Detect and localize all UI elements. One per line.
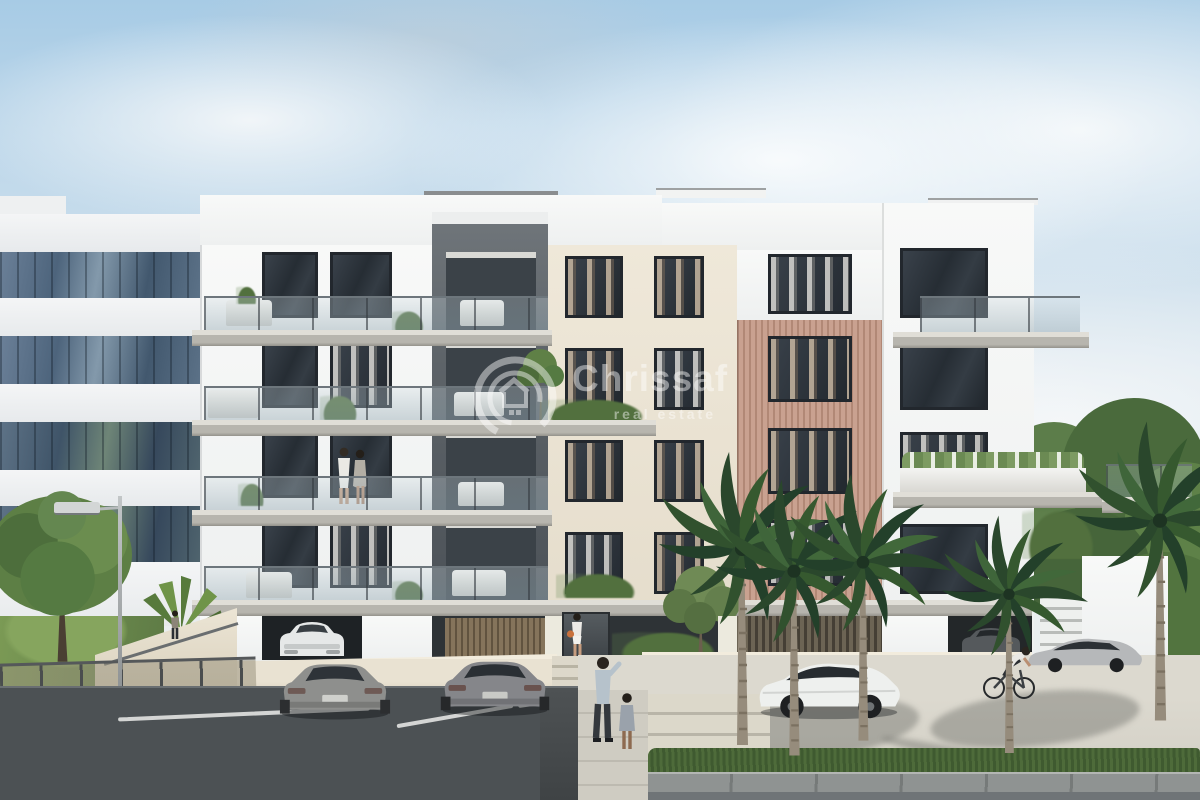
watermark-brand: Chrissaf [572,358,728,400]
balcony-railing [204,566,548,604]
ramp-person [166,610,184,642]
watermark-logo [468,348,562,444]
window-curtains [565,256,623,318]
window-curtains [768,336,852,402]
corner-balcony-slab [893,332,1089,348]
lamp-pole [118,496,122,692]
white-car-in-garage [272,620,352,660]
watermark: Chrissaf real estate [468,348,728,444]
corner-balcony-railing [920,296,1080,334]
window-curtains [654,256,704,318]
grey-coupe-parked [276,658,394,720]
window [900,340,988,410]
window-curtains [565,440,623,502]
balcony-railing [204,296,548,334]
balcony-plant [556,570,642,598]
balcony-railing [204,476,548,514]
core-cap [432,212,548,224]
entrance-column [545,616,562,660]
grey-coupe-parked [430,656,560,716]
palm-tree [772,448,954,800]
lamp-head [54,502,100,515]
street-lamp [54,496,134,692]
balcony-slab [192,330,552,346]
man-with-child [586,654,642,770]
roof-detail-line [656,188,766,198]
parapet-left [200,195,662,246]
window [768,254,852,314]
palm-tree [1058,378,1200,800]
balcony-slab [192,510,552,526]
render-canvas: Chrissaf real estate [0,0,1200,800]
watermark-tagline: real estate [572,406,716,422]
entrance-wood-panel [445,618,545,660]
